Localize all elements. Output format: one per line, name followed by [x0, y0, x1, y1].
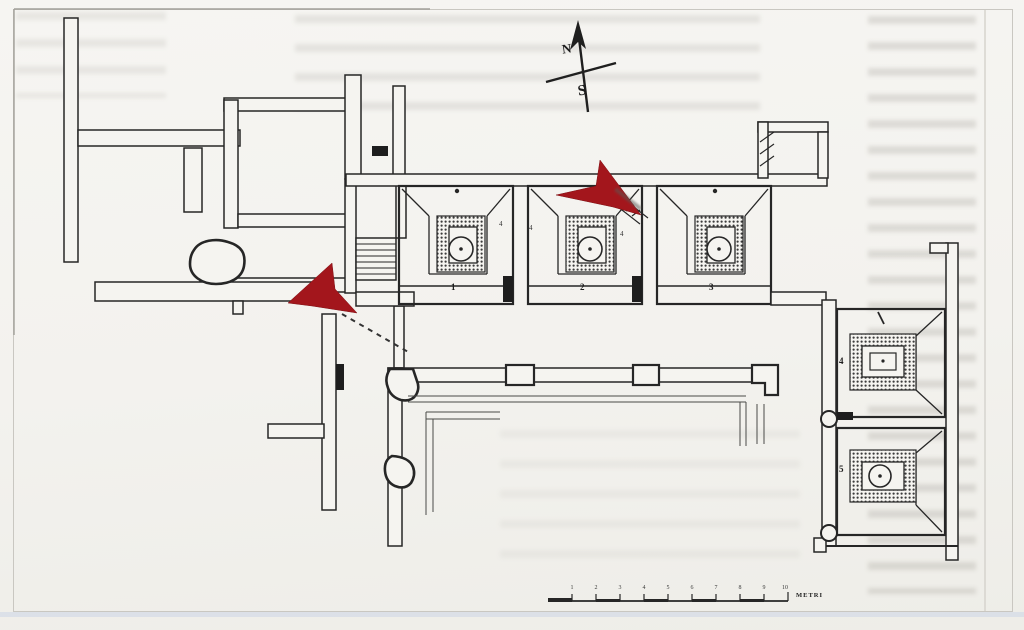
door-mark: 4	[620, 231, 624, 238]
chamber-row-top-wall	[346, 174, 827, 186]
scale-tick-number: 2	[590, 585, 602, 591]
chamber-3	[657, 186, 771, 304]
scale-tick-number: 3	[614, 585, 626, 591]
chamber-3-label: 3	[709, 283, 714, 292]
exedra-blob	[190, 240, 244, 284]
upper-right-annex	[758, 122, 828, 305]
red-arrow-southeast	[556, 160, 641, 215]
scale-bar	[548, 592, 788, 602]
scanned-plan-page: 1 2 3 4 5 4 4 4 N S 1 2 3 4 5 6 7 8 9 10…	[0, 0, 1024, 630]
right-walls	[814, 243, 958, 560]
scale-tick-number: 7	[710, 585, 722, 591]
plan-drawing	[0, 0, 1024, 630]
chamber-4	[837, 309, 945, 417]
door-mark: 4	[529, 225, 533, 232]
chamber-5-label: 5	[839, 465, 844, 474]
compass-north-label: N	[561, 41, 572, 55]
scan-border	[0, 9, 1024, 617]
scale-tick-number: 8	[734, 585, 746, 591]
chamber-1	[399, 186, 513, 304]
scale-tick-number: 5	[662, 585, 674, 591]
scale-tick-number: 9	[758, 585, 770, 591]
scale-tick-number: 6	[686, 585, 698, 591]
chamber-1-label: 1	[451, 283, 456, 292]
scale-tick-number: 4	[638, 585, 650, 591]
portico-gutter-lines	[408, 396, 764, 515]
scale-tick-number: 1	[566, 585, 578, 591]
scale-tick-number: 10	[779, 585, 791, 591]
door-mark: 4	[499, 221, 503, 228]
chamber-4-label: 4	[839, 357, 844, 366]
mid-pillar-blob	[385, 456, 414, 487]
chamber-2-label: 2	[580, 283, 585, 292]
chamber-5	[837, 428, 945, 535]
courtyard-walls	[385, 365, 778, 546]
scale-unit-label: METRI	[796, 593, 823, 600]
staircase	[356, 238, 396, 280]
